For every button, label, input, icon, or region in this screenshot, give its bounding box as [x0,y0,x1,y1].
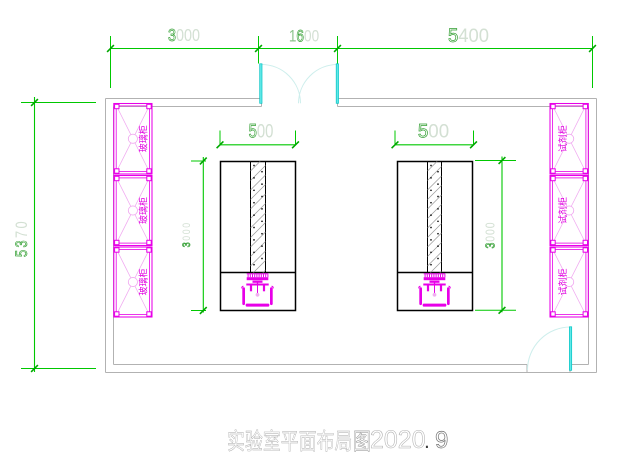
svg-text:5370: 5370 [12,219,31,257]
svg-text:实验室平面布局: 实验室平面布局 [227,429,352,455]
svg-text:500: 500 [418,121,449,142]
svg-text:试剂柜: 试剂柜 [557,197,568,224]
svg-text:3000: 3000 [484,221,498,248]
svg-text:9: 9 [435,427,448,454]
svg-text:2020: 2020 [370,426,426,454]
svg-text:5400: 5400 [448,25,489,46]
svg-text:玻璃柜: 玻璃柜 [137,197,148,224]
svg-text:3000: 3000 [181,221,193,247]
svg-text:500: 500 [249,120,274,142]
svg-text:试剂柜: 试剂柜 [557,268,568,295]
svg-text:图: 图 [353,429,371,455]
svg-text:.: . [424,430,430,453]
svg-text:试剂柜: 试剂柜 [557,125,568,152]
svg-text:3000: 3000 [168,26,200,46]
svg-text:1600: 1600 [289,27,319,46]
svg-text:玻璃柜: 玻璃柜 [137,125,148,152]
svg-text:玻璃柜: 玻璃柜 [137,268,148,295]
